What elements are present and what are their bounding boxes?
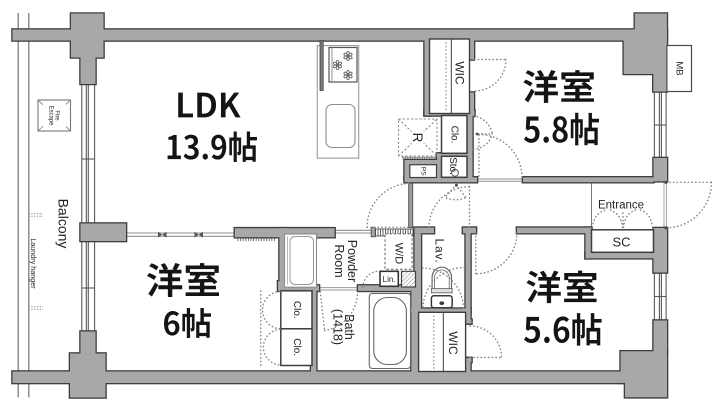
svg-text:R: R [410,133,425,143]
svg-text:MB: MB [674,61,685,75]
svg-text:PS: PS [420,167,427,176]
svg-text:PowderRoom: PowderRoom [332,240,359,282]
svg-text:WIC: WIC [453,61,467,85]
svg-text:Bath(1418): Bath(1418) [330,309,356,345]
svg-text:Clo.: Clo. [291,338,302,356]
svg-text:Lav.: Lav. [433,239,447,264]
svg-text:Clo.: Clo. [449,126,460,144]
svg-text:Laundry hanger: Laundry hanger [29,238,38,289]
svg-text:Sto.: Sto. [447,157,458,175]
svg-text:W/D: W/D [392,243,404,264]
svg-text:SC: SC [612,235,630,250]
svg-text:Balcony: Balcony [56,199,72,249]
svg-text:Lin.: Lin. [383,275,396,284]
svg-text:WIC: WIC [446,331,460,355]
svg-text:Clo.: Clo. [291,301,302,319]
